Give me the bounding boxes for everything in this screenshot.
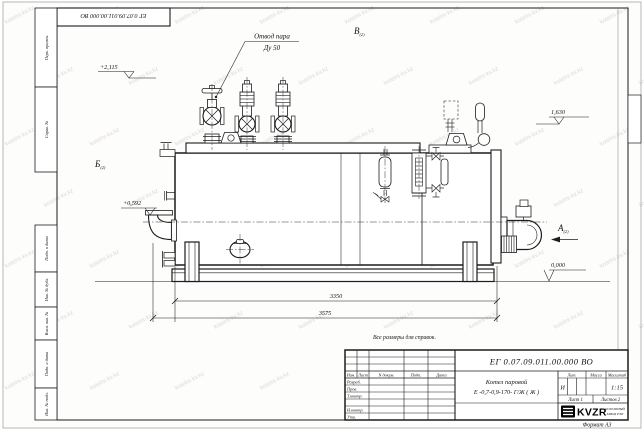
dimension-text: 3350 <box>329 293 343 300</box>
support-leg-right <box>463 242 477 282</box>
lit-value: И <box>559 385 565 392</box>
rear-flange-plate <box>491 150 501 263</box>
leader-text-1: Отвод пара <box>254 33 290 41</box>
sheets-total: Листов 2 <box>600 398 621 403</box>
elevation-text: 1,630 <box>551 109 566 116</box>
side-label: Перв. примен. <box>44 35 49 61</box>
sheet-number: Лист 1 <box>567 398 583 403</box>
dimension-text: 3575 <box>318 310 331 317</box>
logo-text: KVZR <box>577 407 607 419</box>
row-approver: Утв. <box>347 415 356 420</box>
elevation-text: +0,592 <box>123 200 141 207</box>
elevation-text: +2,115 <box>100 64 118 71</box>
side-label: Справ. № <box>44 121 49 138</box>
col-doc: N докум. <box>378 373 395 378</box>
row-tcontrol: Т.контр. <box>347 394 363 399</box>
scale-label: Масштаб <box>607 372 627 377</box>
top-designation-stamp: ЕГ 0.07.09.011.00.000 ВО <box>57 8 170 26</box>
drawing-designation: ЕГ 0.07.09.011.00.000 ВО <box>489 357 593 367</box>
side-label: Инв. № дубл. <box>44 278 49 302</box>
elevation-text: 0,000 <box>551 262 566 269</box>
skid-frame <box>172 269 494 282</box>
col-sign: Подп. <box>410 373 422 378</box>
lit-label: Лит. <box>566 372 576 377</box>
row-checker: Пров. <box>346 387 357 392</box>
title-block: Изм. Лист N докум. Подп. Дата Разраб. Пр… <box>345 350 628 420</box>
side-label: Взам. инв. № <box>44 312 49 336</box>
row-developer: Разраб. <box>346 380 361 385</box>
mass-label: Масса <box>589 372 602 377</box>
side-label: Подп. и дата <box>44 236 49 262</box>
col-list: Лист <box>357 373 368 378</box>
burner-control-box <box>516 206 531 217</box>
reference-note: Все размеры для справок. <box>373 334 436 341</box>
support-leg-left <box>185 242 199 282</box>
col-izm: Изм. <box>346 373 356 378</box>
leader-text-2: Ду 50 <box>263 44 281 52</box>
col-date: Дата <box>435 373 446 378</box>
top-platform-right <box>429 145 471 153</box>
lifting-lug-left <box>221 133 241 144</box>
logo-sub-2: ЗАВОД РЭП <box>607 412 624 416</box>
side-label: Подп. и дата <box>44 352 49 378</box>
drawing-canvas: kotelni-kv.kzkotelni-kv.kzkotelni-kv.kzk… <box>0 0 644 430</box>
drawing-sheet: kotelni-kv.kzkotelni-kv.kzkotelni-kv.kzk… <box>0 0 644 430</box>
product-name: Котел паровой <box>485 379 528 386</box>
scale-value: 1:15 <box>611 385 624 392</box>
side-label: Инв. № подл. <box>44 392 49 417</box>
format-label: Формат А3 <box>583 423 612 429</box>
lifting-lug-right <box>446 134 467 146</box>
edge-tab <box>628 95 641 143</box>
top-designation-text: ЕГ 0.07.09.011.00.000 ВО <box>80 12 147 19</box>
product-type: Е -0,7-0,9-170- Г/Ж ( Ж ) <box>473 389 539 396</box>
row-ncontrol: Н.контр. <box>346 408 364 413</box>
